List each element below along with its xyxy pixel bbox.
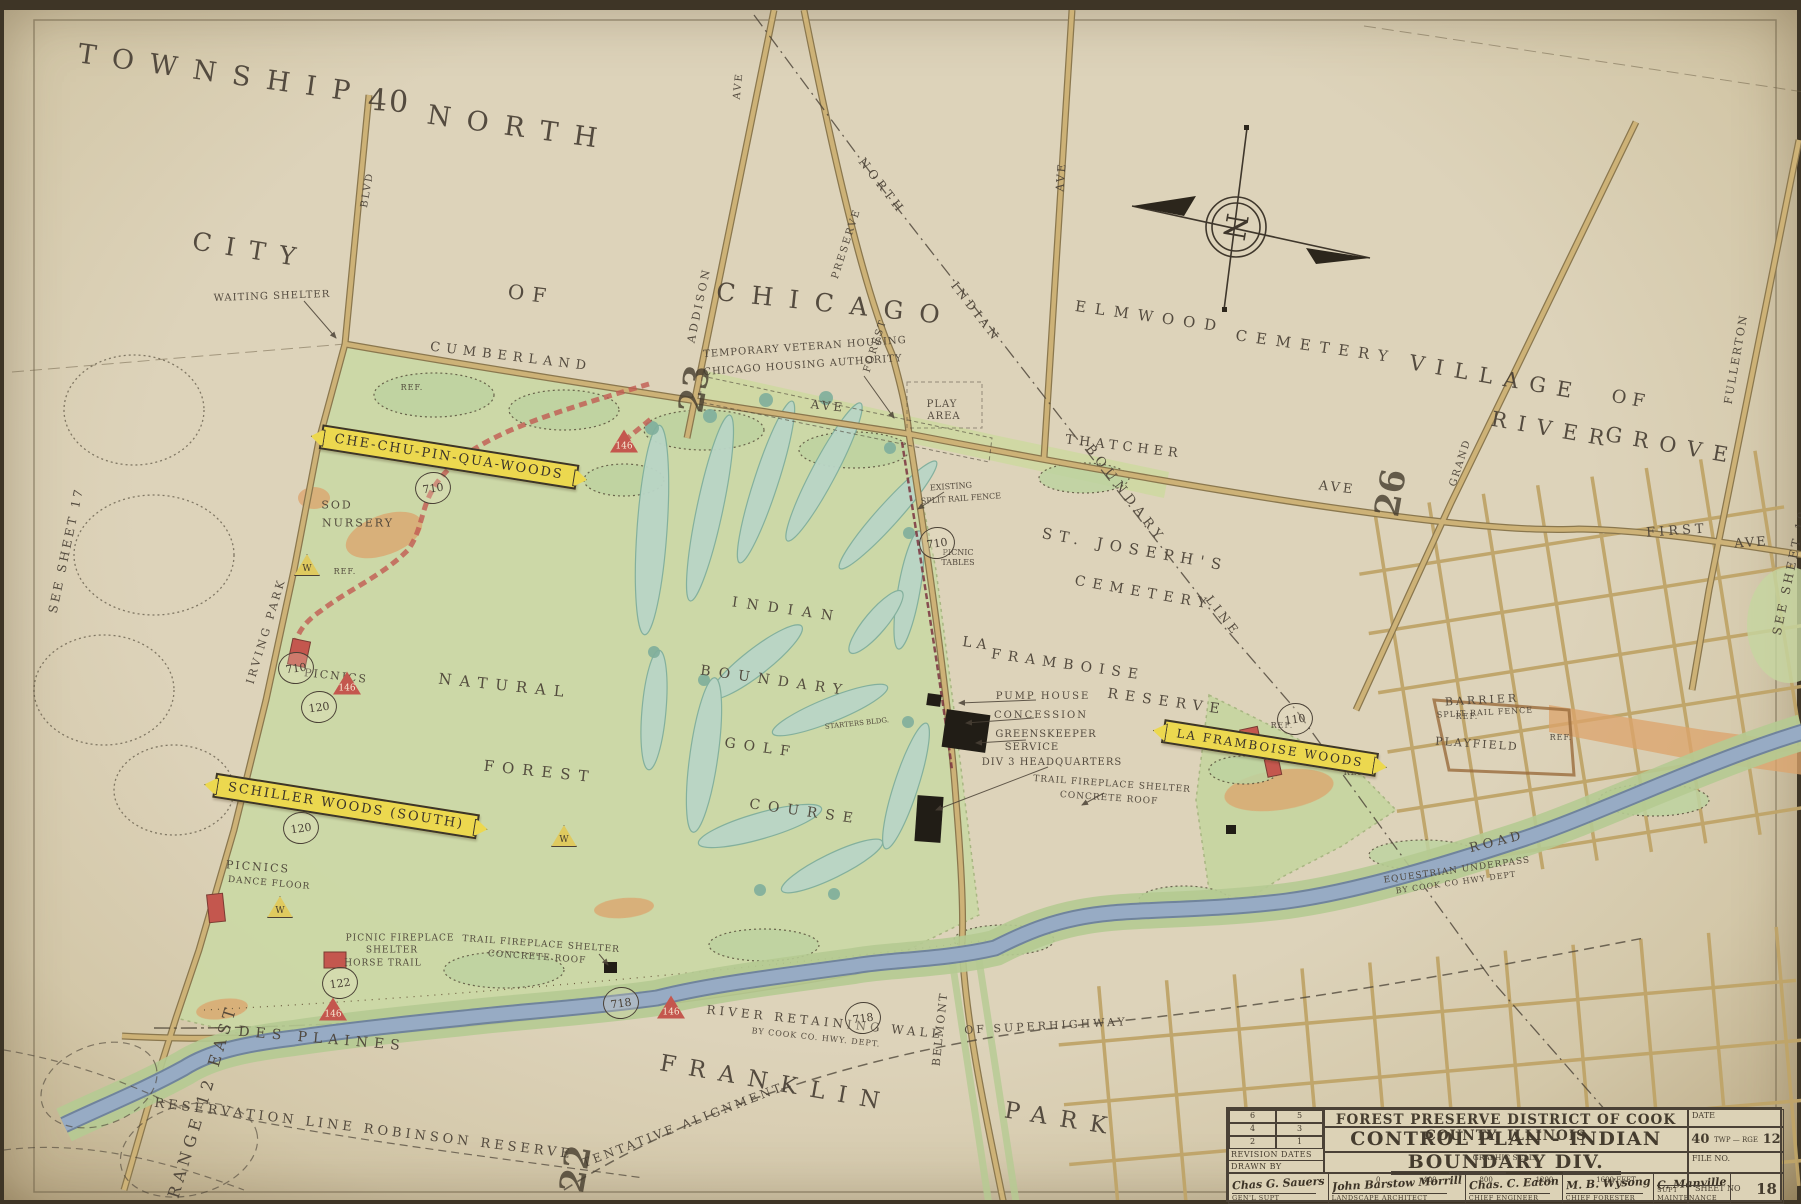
22-label: 22 — [555, 1143, 597, 1196]
signature-name: Chas G. Sauers — [1232, 1175, 1325, 1193]
revision-number: 4 — [1229, 1123, 1276, 1136]
ave-label: AVE — [1734, 535, 1768, 550]
nursery-label: NURSERY — [322, 518, 394, 529]
service-label: SERVICE — [1005, 743, 1059, 753]
map-canvas: N TOWNSHIP40NORTHCITYOFCHICAGOVILLAGEOFR… — [4, 10, 1801, 1200]
signature-name: Chas. C. Eaton — [1468, 1175, 1558, 1193]
signature-chief-engineer: Chas. C. EatonCHIEF ENGINEER — [1466, 1174, 1563, 1203]
ref-label: REF. — [1456, 713, 1479, 721]
signature-gen-l-supt: Chas G. SauersGEN'L SUPT — [1229, 1174, 1329, 1203]
revision-number: 6 — [1229, 1110, 1276, 1123]
ave-label: AVE — [810, 398, 846, 414]
plan-title: CONTROL PLAN - INDIAN BOUNDARY DIV. — [1324, 1127, 1688, 1152]
sod-label: SOD — [321, 500, 352, 511]
revision-dates-label: REVISION DATES — [1229, 1149, 1323, 1160]
signature-role: CHIEF FORESTER — [1566, 1193, 1643, 1202]
horse-trail-label: HORSE TRAIL — [344, 960, 421, 969]
signature-role: GEN'L SUPT — [1232, 1193, 1316, 1202]
triangle-number: W — [302, 564, 311, 575]
greenskeeper-label: GREENSKEEPER — [995, 730, 1096, 740]
play-label: PLAY — [927, 400, 958, 410]
ref-label: REF. — [401, 384, 424, 392]
signature-name: John Barstow Morrill — [1331, 1174, 1462, 1194]
revision-numbers: 654321 — [1229, 1110, 1323, 1149]
signature-row: Chas G. SauersGEN'L SUPTJohn Barstow Mor… — [1228, 1173, 1688, 1204]
twp-rge-box: 40 TWP — RGE 12 — [1688, 1127, 1784, 1152]
graphic-scale-label: GRAPHIC SCALE — [1473, 1153, 1539, 1162]
div-3-headquarters-label: DIV 3 HEADQUARTERS — [982, 758, 1122, 768]
triangle-number: 146 — [338, 684, 355, 695]
triangle-number: 146 — [324, 1010, 341, 1021]
agency-name: FOREST PRESERVE DISTRICT OF COOK COUNTY,… — [1324, 1109, 1688, 1127]
drawn-by-label: DRAWN BY — [1229, 1160, 1323, 1172]
signature-name: M. B. Wysong — [1565, 1175, 1650, 1192]
revision-number: 1 — [1276, 1136, 1323, 1149]
concession-label: CONCESSION — [994, 711, 1088, 721]
23-label: 23 — [674, 363, 716, 416]
revision-number: 3 — [1276, 1123, 1323, 1136]
signature-role: CHIEF ENGINEER — [1469, 1193, 1551, 1202]
signature-role: LANDSCAPE ARCHITECT — [1332, 1193, 1448, 1202]
twp-rge-label: TWP — RGE — [1714, 1136, 1758, 1144]
twp-value: 40 — [1691, 1132, 1709, 1147]
area-label: AREA — [927, 412, 960, 422]
triangle-number: W — [559, 835, 568, 846]
pump-house-label: PUMP HOUSE — [996, 692, 1091, 702]
40-label: 40 — [367, 86, 411, 119]
ave-label: AVE — [1054, 162, 1068, 192]
triangle-number: W — [275, 906, 284, 917]
signature-chief-forester: M. B. WysongCHIEF FORESTER — [1563, 1174, 1655, 1203]
signature-role: SUPT MAINTENANCE — [1657, 1185, 1721, 1202]
ref-label: REF. — [334, 568, 357, 576]
of-label: OF — [507, 281, 555, 306]
rge-value: 12 — [1763, 1132, 1781, 1147]
triangle-number: 146 — [615, 442, 632, 453]
signature-supt-maintenance: C. ManvilleSUPT MAINTENANCE — [1654, 1174, 1730, 1203]
la-label: LA — [961, 635, 992, 653]
date-box: DATE — [1688, 1109, 1784, 1127]
revision-number: 2 — [1229, 1136, 1276, 1149]
file-no-box: FILE NO. — [1688, 1152, 1784, 1173]
signature-landscape-architect: John Barstow MorrillLANDSCAPE ARCHITECT — [1329, 1174, 1466, 1203]
tables-label: TABLES — [941, 559, 974, 567]
26-label: 26 — [1370, 467, 1412, 520]
title-block: 654321 REVISION DATES DRAWN BY FOREST PR… — [1226, 1107, 1782, 1202]
compass-north-letter: N — [1215, 211, 1254, 243]
sheet-no-value: 18 — [1756, 1180, 1777, 1198]
ref-label: REF. — [1550, 734, 1573, 742]
picnic-fireplace-label: PICNIC FIREPLACE — [346, 935, 455, 944]
triangle-number: 146 — [662, 1008, 679, 1019]
map-sheet: N TOWNSHIP40NORTHCITYOFCHICAGOVILLAGEOFR… — [4, 10, 1797, 1200]
shelter-label: SHELTER — [366, 947, 418, 956]
graphic-scale: GRAPHIC SCALE 040080012001600 FEET — [1324, 1152, 1688, 1173]
revision-number: 5 — [1276, 1110, 1323, 1123]
